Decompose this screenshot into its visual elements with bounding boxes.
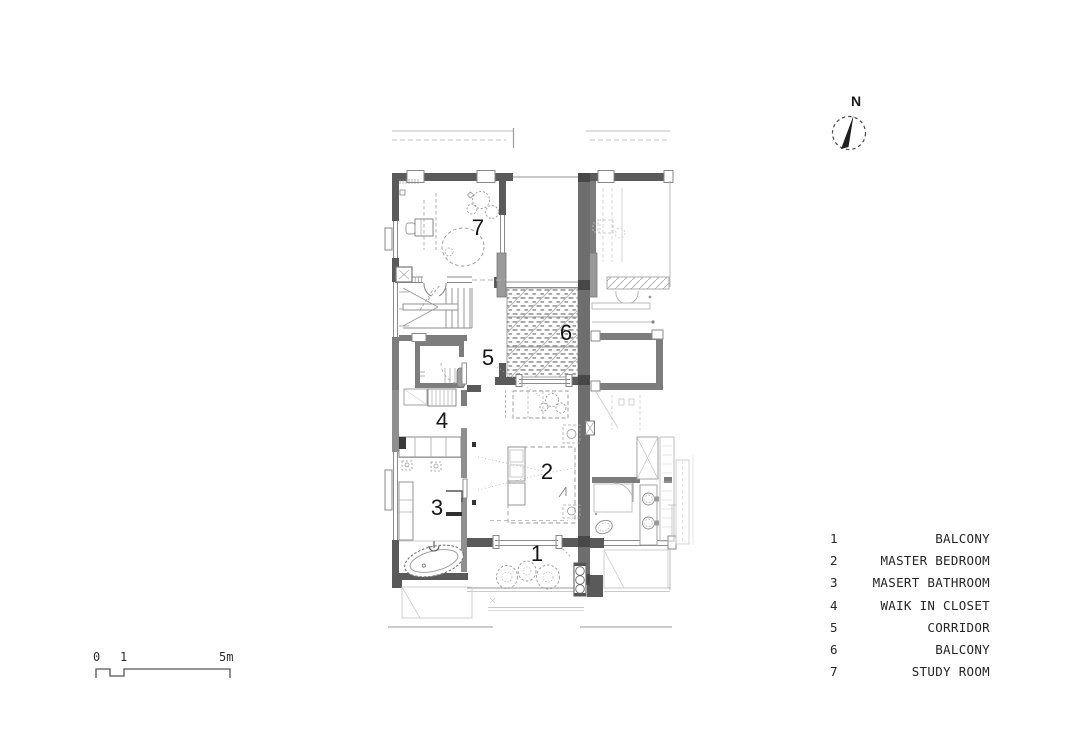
legend-row: 2 MASTER BEDROOM	[830, 549, 990, 571]
room-label-walk-in-closet: 4	[436, 410, 448, 432]
legend-name: BALCONY	[935, 531, 990, 546]
room-legend: 1 BALCONY 2 MASTER BEDROOM 3 MASERT BATH…	[830, 527, 990, 683]
north-label: N	[851, 93, 862, 109]
legend-name: STUDY ROOM	[912, 664, 990, 679]
scale-label-mid: 1	[120, 650, 127, 664]
pilaster-left	[497, 253, 506, 297]
legend-row: 3 MASERT BATHROOM	[830, 572, 990, 594]
legend-name: MASERT BATHROOM	[873, 575, 990, 590]
legend-num: 6	[830, 642, 838, 657]
room-label-master-bathroom: 3	[431, 497, 443, 519]
master-bedroom	[478, 367, 580, 557]
room-label-balcony-upper: 6	[560, 322, 572, 344]
balcony-1	[467, 561, 670, 611]
scale-label-end: 5m	[219, 650, 233, 664]
legend-num: 1	[830, 531, 838, 546]
walls-light	[392, 390, 467, 572]
walk-in-closet	[399, 363, 467, 458]
legend-name: WAIK IN CLOSET	[880, 598, 990, 613]
legend-row: 6 BALCONY	[830, 638, 990, 660]
legend-row: 4 WAIK IN CLOSET	[830, 594, 990, 616]
legend-name: CORRIDOR	[927, 620, 990, 635]
study-room	[395, 179, 505, 300]
legend-num: 3	[830, 575, 838, 590]
legend-name: BALCONY	[935, 642, 990, 657]
room-label-balcony-lower: 1	[531, 543, 543, 565]
roof-projection-lines	[392, 128, 670, 177]
floor-plan-page: { "compass": { "label": "N" }, "scalebar…	[0, 0, 1080, 756]
legend-num: 4	[830, 598, 838, 613]
north-compass	[833, 116, 866, 150]
legend-num: 2	[830, 553, 838, 568]
neighbor-awning-hatch	[607, 277, 669, 289]
legend-num: 5	[830, 620, 838, 635]
louvre-shaft	[574, 563, 586, 596]
pilaster-right	[589, 253, 597, 297]
compass-needle	[841, 116, 854, 150]
legend-num: 7	[830, 664, 838, 679]
plant-sketch	[540, 394, 566, 414]
room-label-corridor: 5	[482, 347, 494, 369]
legend-name: MASTER BEDROOM	[880, 553, 990, 568]
scale-bar	[96, 669, 230, 678]
legend-row: 7 STUDY ROOM	[830, 661, 990, 683]
legend-row: 1 BALCONY	[830, 527, 990, 549]
scale-label-start: 0	[93, 650, 100, 664]
legend-row: 5 CORRIDOR	[830, 616, 990, 638]
room-label-master-bedroom: 2	[541, 461, 553, 483]
room-label-study-room: 7	[472, 217, 484, 239]
